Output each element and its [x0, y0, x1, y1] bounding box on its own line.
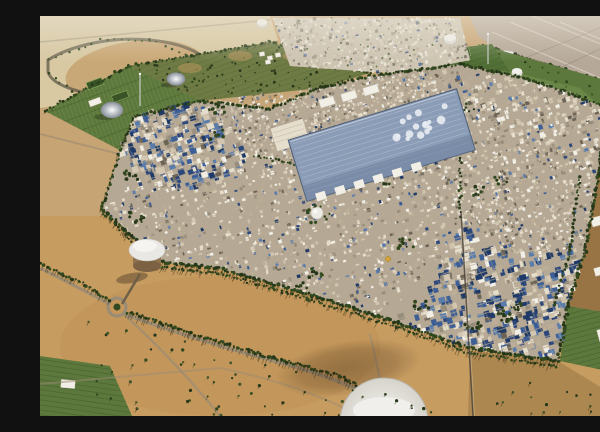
golden-dome	[385, 256, 390, 261]
horizon-haze	[40, 16, 600, 62]
scene-svg	[40, 16, 600, 416]
aerial-city-render	[40, 16, 600, 416]
